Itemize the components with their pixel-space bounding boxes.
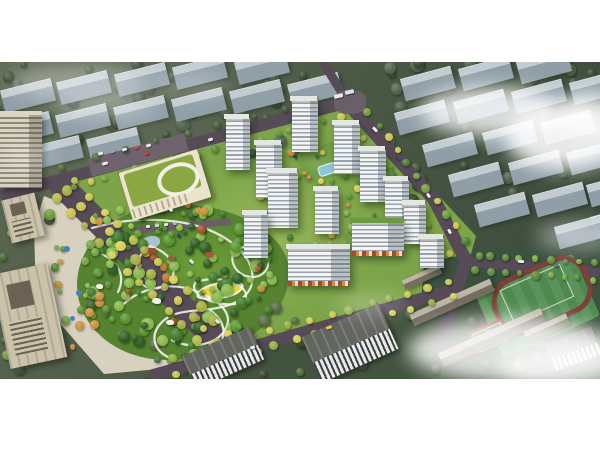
vehicle: [173, 222, 177, 225]
tree: [182, 230, 187, 235]
office-roof-court: [10, 201, 27, 216]
tree: [407, 306, 414, 313]
tree: [88, 178, 94, 184]
residential-tower: [315, 190, 339, 234]
context-apartment-block: [234, 62, 290, 85]
tree: [91, 248, 99, 256]
building-roof: [313, 186, 338, 191]
tree: [108, 251, 116, 259]
building-roof: [332, 120, 359, 125]
building-roof: [358, 146, 385, 151]
residential-tower: [226, 118, 250, 170]
tree: [90, 320, 99, 329]
mid-rise-slab: [352, 222, 404, 256]
tree: [54, 281, 62, 289]
tree: [200, 207, 207, 214]
tree: [257, 285, 265, 293]
tree: [51, 263, 60, 272]
tree: [81, 257, 89, 265]
tree: [230, 241, 240, 251]
tree: [0, 253, 7, 261]
tree: [197, 225, 206, 234]
tree: [209, 286, 215, 292]
retail-frontage: [352, 251, 404, 256]
tree: [188, 223, 195, 230]
context-apartment-block: [532, 182, 588, 218]
tree: [101, 176, 106, 181]
tree: [57, 259, 62, 264]
tree: [574, 274, 580, 280]
tree: [66, 208, 76, 218]
rendering-content-area: [0, 62, 600, 379]
tree: [299, 71, 308, 80]
tree: [442, 210, 450, 218]
tree: [460, 161, 468, 169]
tree: [95, 217, 103, 225]
cloud: [10, 64, 150, 100]
building-side-face: [289, 172, 298, 228]
tree: [165, 307, 173, 315]
tree: [402, 159, 410, 167]
building-side-face: [261, 214, 268, 258]
tree: [302, 171, 307, 176]
tree: [44, 209, 55, 220]
tree: [245, 297, 252, 304]
tree: [360, 135, 366, 141]
context-apartment-block: [229, 79, 285, 114]
tree: [168, 231, 174, 237]
tree: [377, 123, 383, 129]
tree: [461, 237, 469, 245]
tree: [20, 62, 27, 68]
tree: [116, 206, 124, 214]
vehicle: [146, 225, 150, 228]
tree: [154, 357, 160, 363]
tree: [119, 331, 131, 343]
building-roof: [290, 96, 317, 101]
tree: [176, 224, 183, 231]
tree: [155, 229, 160, 234]
residential-tower: [292, 100, 318, 152]
tree: [140, 246, 148, 254]
park-pavilion: [148, 248, 156, 254]
tree: [169, 261, 178, 270]
tree: [390, 165, 394, 169]
context-apartment-block: [474, 192, 530, 228]
tree: [372, 213, 376, 217]
tree: [168, 354, 176, 362]
residential-tower: [334, 124, 360, 174]
tree: [453, 222, 459, 228]
tree: [282, 106, 287, 111]
tree: [531, 271, 540, 280]
tree: [255, 266, 260, 271]
tree: [130, 254, 140, 264]
tree: [252, 114, 257, 119]
tree: [70, 344, 75, 349]
tree: [548, 272, 554, 278]
white-canopy: [96, 284, 103, 289]
tree: [218, 237, 224, 243]
tree: [187, 271, 193, 277]
architectural-rendering-page: [0, 0, 600, 450]
vehicle: [518, 260, 524, 263]
cloud: [336, 294, 406, 316]
office-roof-court: [6, 281, 35, 310]
building-roof: [224, 114, 249, 119]
tree: [211, 145, 219, 153]
tree: [293, 335, 300, 342]
tree: [146, 269, 156, 279]
cloud: [55, 94, 155, 120]
building-side-face: [332, 190, 339, 234]
tree: [221, 284, 233, 296]
tree: [103, 216, 111, 224]
park-pavilion: [206, 252, 213, 257]
tree: [196, 301, 207, 312]
tree: [590, 277, 597, 284]
tree: [105, 281, 111, 287]
mid-rise-slab: [420, 238, 444, 268]
tree: [291, 317, 298, 324]
retail-frontage: [288, 281, 350, 286]
tree: [101, 209, 109, 217]
tree: [71, 184, 76, 189]
tree: [318, 178, 324, 184]
tree: [363, 108, 371, 116]
tree: [562, 274, 567, 279]
tree: [174, 296, 182, 304]
vehicle: [155, 224, 159, 227]
tree: [77, 306, 85, 314]
tree: [123, 268, 131, 276]
building-roof: [402, 200, 425, 205]
tree: [320, 150, 324, 154]
plaza-umbrella: [64, 246, 70, 252]
tree: [128, 223, 134, 229]
tree: [476, 252, 484, 260]
building-roof: [242, 210, 267, 215]
tree: [61, 316, 70, 325]
tree: [247, 277, 253, 283]
tree: [189, 312, 199, 322]
tree: [230, 308, 238, 316]
tree: [120, 313, 131, 324]
tree: [346, 203, 350, 207]
tree: [395, 147, 401, 153]
tree: [563, 259, 568, 264]
tree: [125, 289, 130, 294]
tree: [58, 164, 65, 171]
tree: [258, 315, 270, 327]
tree: [161, 283, 168, 290]
tree: [315, 154, 319, 158]
tree: [502, 269, 509, 276]
tree: [124, 278, 134, 288]
tree: [213, 121, 221, 129]
white-canopy: [152, 298, 161, 304]
office-roof-louvers: [11, 217, 33, 237]
white-canopy: [166, 320, 174, 325]
office-roof: [0, 111, 42, 115]
building-roof: [286, 244, 350, 249]
mid-rise-slab: [288, 248, 350, 286]
context-apartment-block: [422, 132, 478, 168]
context-apartment-block: [516, 62, 572, 84]
tree: [200, 325, 207, 332]
tree: [384, 62, 396, 74]
tree: [532, 255, 538, 261]
tree: [185, 130, 191, 136]
tree: [220, 211, 225, 216]
park-pavilion: [168, 256, 175, 261]
vehicle: [554, 264, 559, 267]
tree: [132, 335, 137, 340]
tree: [329, 178, 334, 183]
building-side-face: [310, 100, 318, 152]
tree: [109, 316, 115, 322]
tree: [221, 267, 228, 274]
tree: [256, 296, 261, 301]
context-apartment-block: [448, 162, 504, 198]
building-roof: [383, 176, 408, 181]
tree: [343, 210, 349, 216]
cloud: [0, 146, 56, 166]
tree: [517, 270, 523, 276]
tree: [591, 259, 598, 266]
building-roof: [350, 218, 404, 223]
building-side-face: [437, 238, 444, 268]
tree: [85, 308, 94, 317]
building-roof: [418, 234, 443, 239]
plaza-umbrella: [76, 290, 82, 296]
office-roof-louvers: [9, 315, 48, 356]
tree: [133, 267, 146, 280]
tree: [153, 138, 158, 143]
building-side-face: [243, 118, 250, 170]
tree: [183, 286, 192, 295]
tree: [52, 193, 62, 203]
building-roof: [254, 140, 281, 145]
tree: [177, 320, 186, 329]
tree: [95, 292, 104, 301]
tree: [446, 250, 453, 257]
tree: [413, 173, 420, 180]
tree: [134, 230, 141, 237]
tree: [423, 284, 431, 292]
tree: [114, 301, 124, 311]
tree: [54, 245, 59, 250]
building-roof: [266, 168, 297, 173]
aerial-masterplan-scene: [0, 62, 600, 379]
residential-tower: [268, 172, 298, 228]
vehicle: [164, 223, 168, 226]
cloud: [150, 74, 230, 96]
tree: [57, 288, 63, 294]
tree: [113, 220, 121, 228]
tree: [157, 335, 168, 346]
context-apartment-block: [586, 172, 600, 208]
tree: [306, 317, 313, 324]
plaza-umbrella: [70, 316, 75, 321]
residential-tower: [244, 214, 268, 258]
tree: [195, 277, 201, 283]
tree: [434, 198, 441, 205]
tree: [172, 371, 180, 379]
